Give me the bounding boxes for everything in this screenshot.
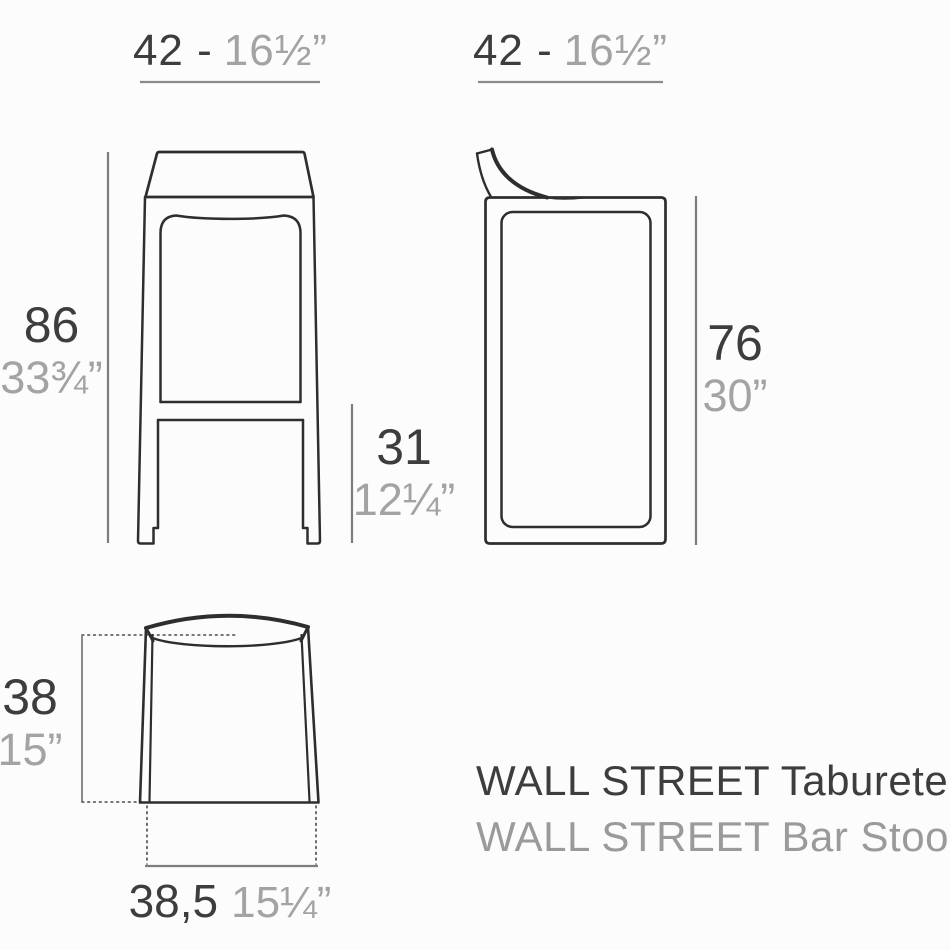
footrest-height-dimension: 31 12¼” xyxy=(348,422,460,523)
top-view-drawing xyxy=(60,595,380,885)
front-right-leg-outline xyxy=(303,197,320,544)
base-width-cm: 38,5 xyxy=(129,874,219,928)
side-seat-lip-curve xyxy=(492,150,547,198)
total-height-inches: 33¾” xyxy=(0,355,103,401)
product-title-english: WALL STREET Bar Stool xyxy=(476,809,950,865)
side-depth-dimension: 42 - 16½” xyxy=(468,26,673,76)
side-depth-inches: 16½” xyxy=(564,26,668,76)
top-inner-edge-right xyxy=(302,635,310,801)
front-width-dimension: 42 - 16½” xyxy=(128,26,333,76)
top-depth-dimension: 38 15” xyxy=(0,672,66,773)
total-height-dimension: 86 33¾” xyxy=(0,300,103,401)
total-height-cm: 86 xyxy=(0,300,103,351)
base-width-dimension: 38,5 15¼” xyxy=(110,874,350,928)
top-seat-front-arch xyxy=(146,616,308,628)
side-depth-cm: 42 - xyxy=(473,26,553,76)
seat-height-inches: 30” xyxy=(680,373,790,419)
base-width-inches: 15¼” xyxy=(231,878,331,928)
top-seat-sag-curve xyxy=(153,638,302,646)
seat-height-dimension: 76 30” xyxy=(680,318,790,419)
product-titles: WALL STREET Taburete WALL STREET Bar Sto… xyxy=(476,753,950,866)
side-seat-lip-tip xyxy=(477,150,492,154)
product-title-spanish: WALL STREET Taburete xyxy=(476,753,950,809)
spec-sheet: 42 - 16½” 42 - 16½” 86 33¾” 31 12¼” 76 3… xyxy=(0,0,950,950)
top-depth-cm: 38 xyxy=(0,672,66,723)
front-view-drawing xyxy=(100,130,370,560)
front-width-cm: 42 - xyxy=(133,26,213,76)
front-seat-outline xyxy=(146,152,314,197)
side-seat-lip-left-edge xyxy=(477,154,491,197)
seat-height-cm: 76 xyxy=(680,318,790,369)
footrest-height-inches: 12¼” xyxy=(348,477,460,523)
front-width-inches: 16½” xyxy=(224,26,328,76)
footrest-height-cm: 31 xyxy=(348,422,460,473)
front-left-leg-outline xyxy=(138,197,158,544)
front-inner-arch xyxy=(161,216,301,403)
top-inner-edge-left xyxy=(150,635,153,801)
top-depth-inches: 15” xyxy=(0,727,66,773)
side-body-outline xyxy=(486,198,666,544)
side-inner-panel xyxy=(502,212,651,527)
top-outline xyxy=(140,616,319,803)
